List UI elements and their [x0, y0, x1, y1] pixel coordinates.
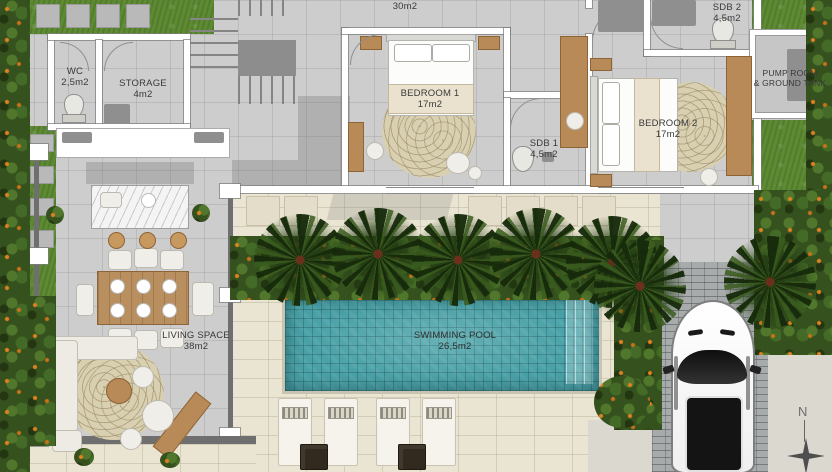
floor-shadow [86, 162, 194, 184]
side-table [132, 366, 154, 388]
plate [110, 303, 125, 318]
room-name: BEDROOM 1 [384, 88, 476, 99]
room-name: BEDROOM 2 [622, 118, 714, 129]
bar-stool [108, 232, 125, 249]
grass-east [752, 120, 814, 192]
wall-pillar [220, 184, 240, 198]
potted-plant [192, 204, 210, 222]
room-area: 38m2 [148, 341, 244, 352]
room-label-living-space: LIVING SPACE 38m2 [148, 330, 244, 352]
paver [126, 4, 150, 28]
bush [160, 452, 180, 468]
coffee-table [106, 378, 132, 404]
pillow [394, 44, 432, 62]
room-area: 4m2 [107, 89, 179, 100]
pot [141, 193, 156, 208]
room-area: 30m2 [349, 1, 461, 12]
potted-plant [46, 206, 64, 224]
car-window-right [746, 356, 750, 410]
wall [586, 0, 592, 8]
pillow [602, 124, 620, 166]
room-label-pump-room: PUMP ROOM & GROUND TANK [748, 68, 832, 88]
end-bench [76, 284, 94, 316]
pouf [142, 400, 174, 432]
bed2-headboard [590, 76, 598, 174]
hedge-west [28, 296, 56, 446]
compass-needle [804, 420, 805, 442]
planting-strip-west [0, 0, 30, 472]
room-area: 17m2 [622, 129, 714, 140]
compass-north-label: N [798, 404, 807, 419]
plate [162, 303, 177, 318]
car-window-left [674, 356, 678, 410]
bar-stool [139, 232, 156, 249]
room-label-sdb1: SDB 1 4,5m2 [514, 138, 574, 160]
pouf [120, 428, 142, 450]
room-name-2: & GROUND TANK [748, 78, 832, 88]
wall [644, 0, 650, 56]
bar-stool [170, 232, 187, 249]
plate [136, 303, 151, 318]
paver [66, 4, 90, 28]
dining-chair [134, 248, 158, 268]
room-name: PUMP ROOM [748, 68, 832, 78]
room-label-circulation: CIRCULATION 30m2 [349, 0, 461, 12]
wall [504, 28, 510, 98]
room-label-bedroom2: BEDROOM 2 17m2 [622, 118, 714, 140]
stool [700, 168, 718, 186]
sliding-glass-door [598, 187, 684, 194]
room-area: 17m2 [384, 99, 476, 110]
dining-chair [160, 250, 184, 270]
sun-lounger [324, 398, 358, 466]
room-area: 4,5m2 [698, 13, 756, 24]
room-area: 26,5m2 [391, 341, 519, 352]
door-arc-storage [104, 42, 133, 71]
ottoman [468, 166, 482, 180]
room-label-wc: WC 2,5m2 [47, 66, 103, 88]
glass-wall-east [228, 190, 233, 442]
console-item [194, 132, 224, 143]
room-label-bedroom1: BEDROOM 1 17m2 [384, 88, 476, 110]
paver [36, 4, 60, 28]
storage-shelf [104, 104, 130, 124]
sink-sdb1 [566, 112, 584, 130]
sliding-glass-door [386, 187, 474, 194]
floor-shadow [232, 160, 342, 186]
end-armchair [192, 282, 214, 316]
room-name: STORAGE [107, 78, 179, 89]
stairs-upper [238, 0, 288, 16]
room-name: WC [47, 66, 103, 77]
room-name: SWIMMING POOL [391, 330, 519, 341]
wall [504, 98, 510, 188]
room-label-swimming-pool: SWIMMING POOL 26,5m2 [391, 330, 519, 352]
room-label-sdb2: SDB 2 4,5m2 [698, 2, 756, 24]
pillow [432, 44, 470, 62]
bush [594, 376, 650, 428]
room-area: 2,5m2 [47, 77, 103, 88]
nightstand [590, 174, 612, 187]
paver [96, 4, 120, 28]
console-item [62, 132, 92, 143]
plate [136, 279, 151, 294]
room-label-storage: STORAGE 4m2 [107, 78, 179, 100]
door-arc-bedroom1 [350, 34, 381, 65]
room-name: SDB 1 [514, 138, 574, 149]
desk-chair [366, 142, 384, 160]
sun-lounger [422, 398, 456, 466]
door-arc-bedroom2 [592, 8, 625, 41]
toilet-tank [62, 114, 86, 123]
plate [110, 279, 125, 294]
nightstand [590, 58, 612, 71]
nightstand [478, 36, 500, 50]
palm-tree [332, 208, 424, 300]
plate [162, 279, 177, 294]
toilet-tank [710, 40, 736, 49]
dining-chair [108, 250, 132, 270]
stairs-flight [190, 18, 238, 76]
door-arc-sdb1 [510, 98, 541, 129]
kitchen-sink [100, 192, 122, 208]
floor-plan-canvas: WC 2,5m2 STORAGE 4m2 CIRCULATION 30m2 BE… [0, 0, 832, 472]
door-arc-sdb2 [650, 16, 683, 49]
pool-steps [566, 298, 593, 384]
wall [48, 34, 190, 40]
car [668, 294, 758, 472]
bush [74, 448, 94, 466]
stairs-lower [238, 76, 302, 104]
lounge-chair [446, 152, 470, 174]
stairs-landing [238, 40, 296, 76]
car-sunroof [685, 396, 743, 472]
planter-box [398, 444, 426, 470]
desk-bedroom1 [348, 122, 364, 172]
wardrobe-vanity [560, 36, 588, 148]
room-name: LIVING SPACE [148, 330, 244, 341]
room-name: SDB 2 [698, 2, 756, 13]
room-area: 4,5m2 [514, 149, 574, 160]
planter-box [300, 444, 328, 470]
pillow [602, 82, 620, 124]
wall [184, 40, 190, 130]
